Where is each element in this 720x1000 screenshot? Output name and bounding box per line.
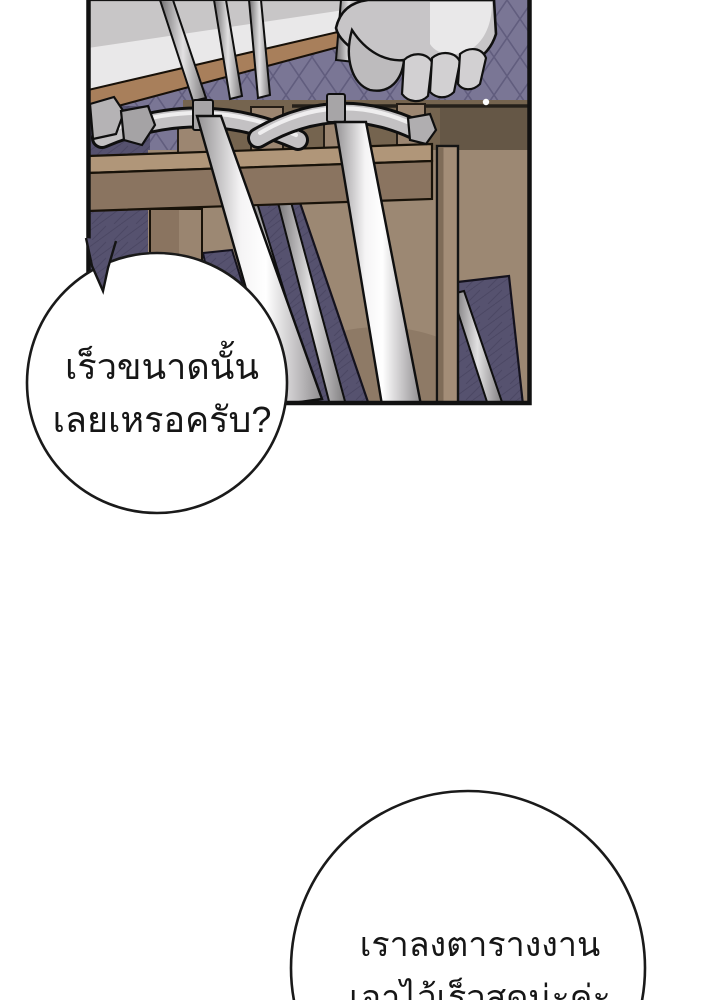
bubble-top-line-2: เลยเหรอครับ? (53, 399, 272, 440)
white-dot (483, 99, 489, 105)
comic-artwork: เราลงตารางงาน เอาไว้เร็วสุดน่ะค่ะ เร็วขน… (0, 0, 720, 1000)
rack-post-shade (439, 147, 444, 404)
bubble-top-line-1: เร็วขนาดนั้น (65, 340, 259, 387)
comic-page: เราลงตารางงาน เอาไว้เร็วสุดน่ะค่ะ เร็วขน… (0, 0, 720, 1000)
bubble-bottom-line-2: เอาไว้เร็วสุดน่ะค่ะ (349, 977, 611, 1000)
bubble-bottom-line-1: เราลงตารางงาน (360, 926, 600, 964)
speech-bubble-bottom-circle (291, 791, 645, 1000)
speech-bubble-bottom: เราลงตารางงาน เอาไว้เร็วสุดน่ะค่ะ (291, 791, 645, 1000)
